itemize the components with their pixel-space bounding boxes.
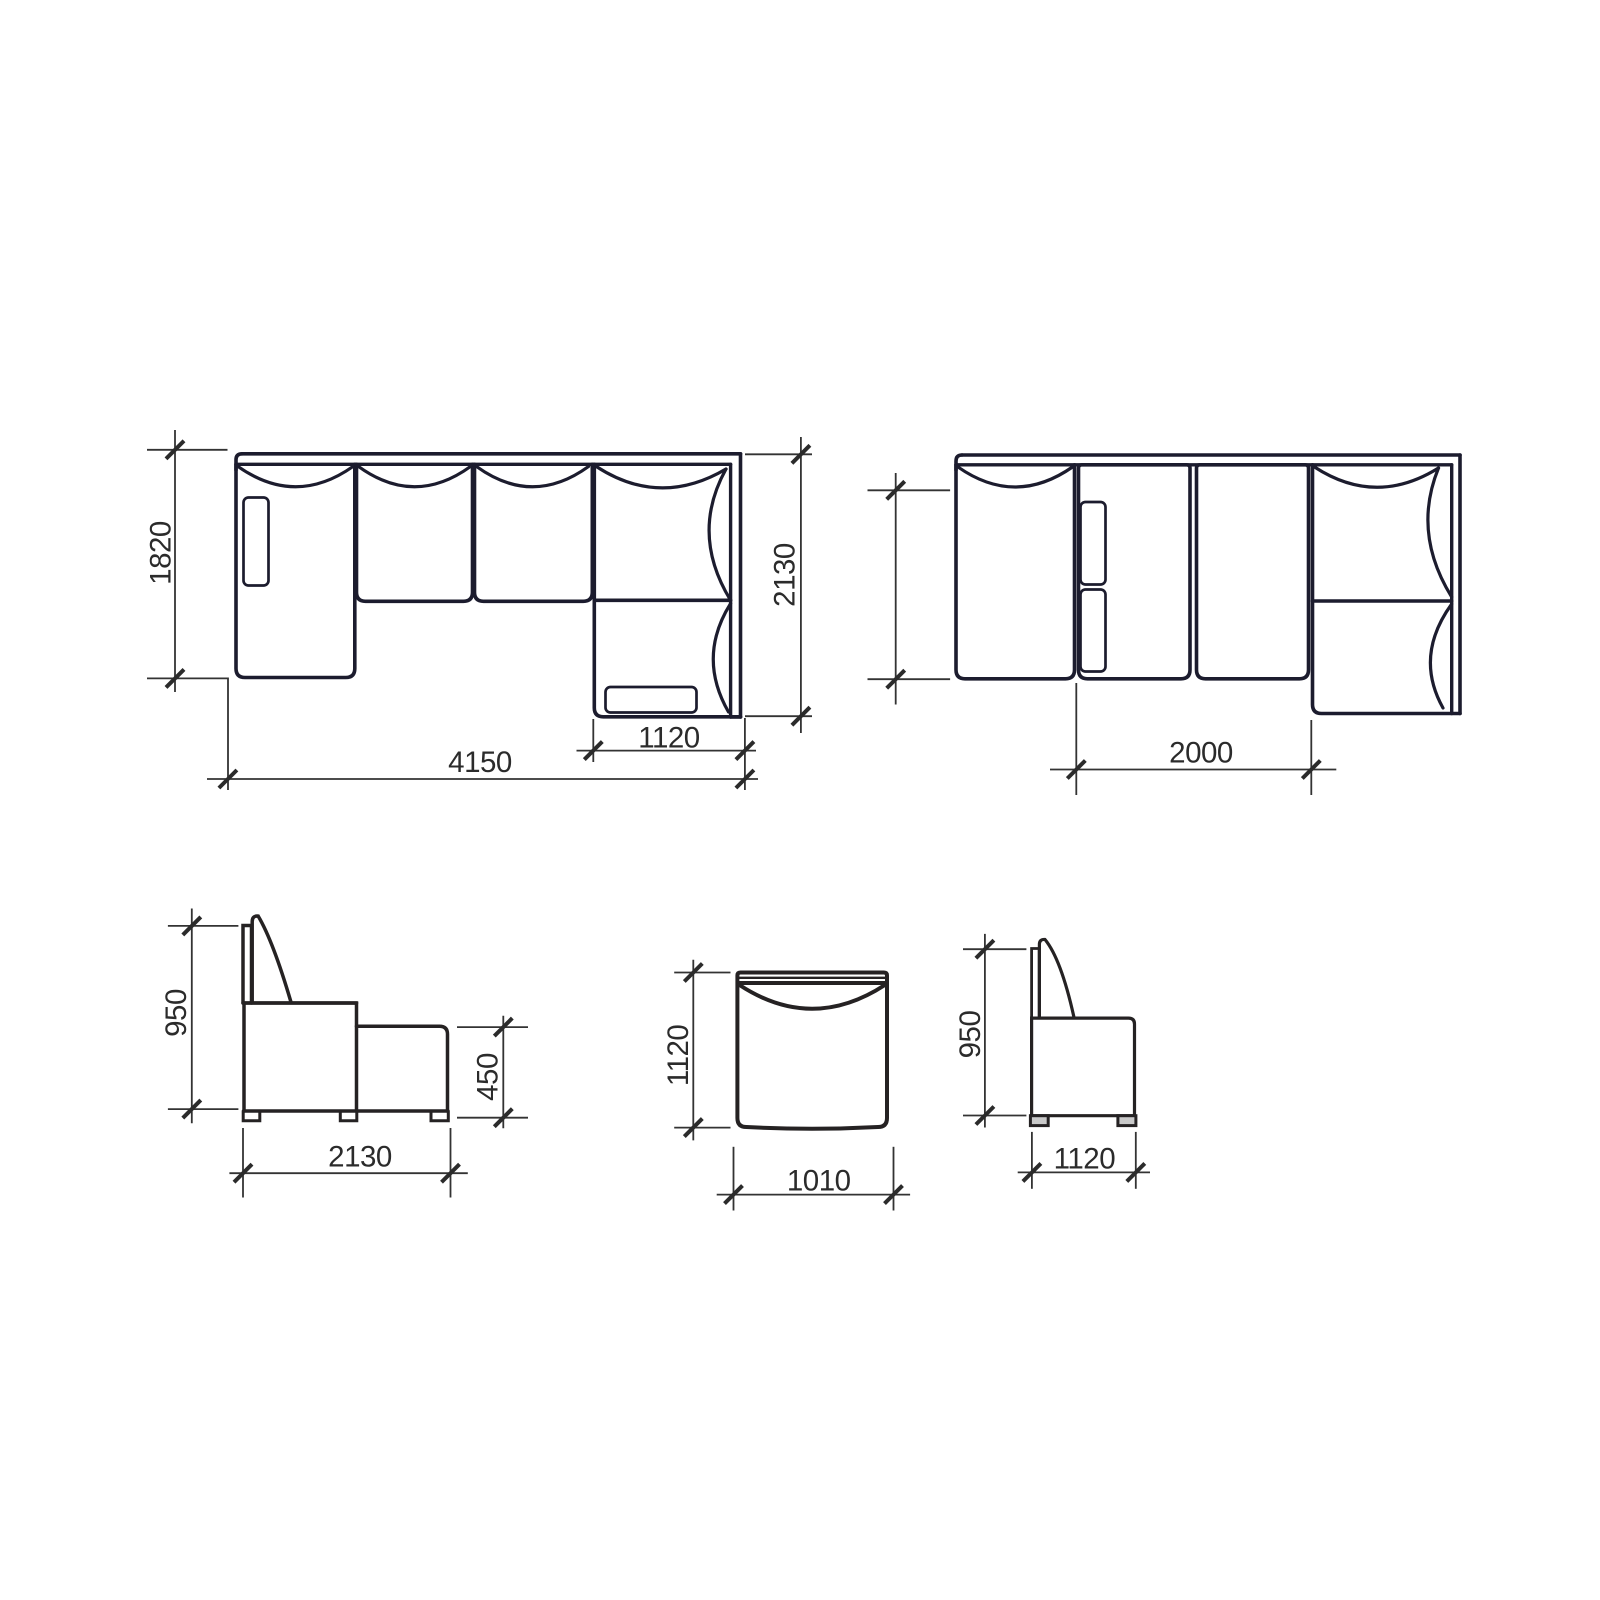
svg-text:1120: 1120 bbox=[662, 1025, 695, 1087]
svg-text:2000: 2000 bbox=[1169, 737, 1233, 770]
svg-text:1820: 1820 bbox=[145, 521, 178, 585]
svg-text:1010: 1010 bbox=[787, 1165, 851, 1198]
svg-text:1120: 1120 bbox=[1054, 1142, 1116, 1175]
svg-text:450: 450 bbox=[472, 1053, 505, 1101]
svg-text:950: 950 bbox=[160, 989, 193, 1037]
svg-text:4150: 4150 bbox=[448, 746, 512, 779]
svg-text:1120: 1120 bbox=[638, 722, 700, 755]
svg-text:2130: 2130 bbox=[769, 543, 802, 607]
svg-text:950: 950 bbox=[954, 1011, 987, 1059]
svg-text:2130: 2130 bbox=[328, 1141, 392, 1174]
